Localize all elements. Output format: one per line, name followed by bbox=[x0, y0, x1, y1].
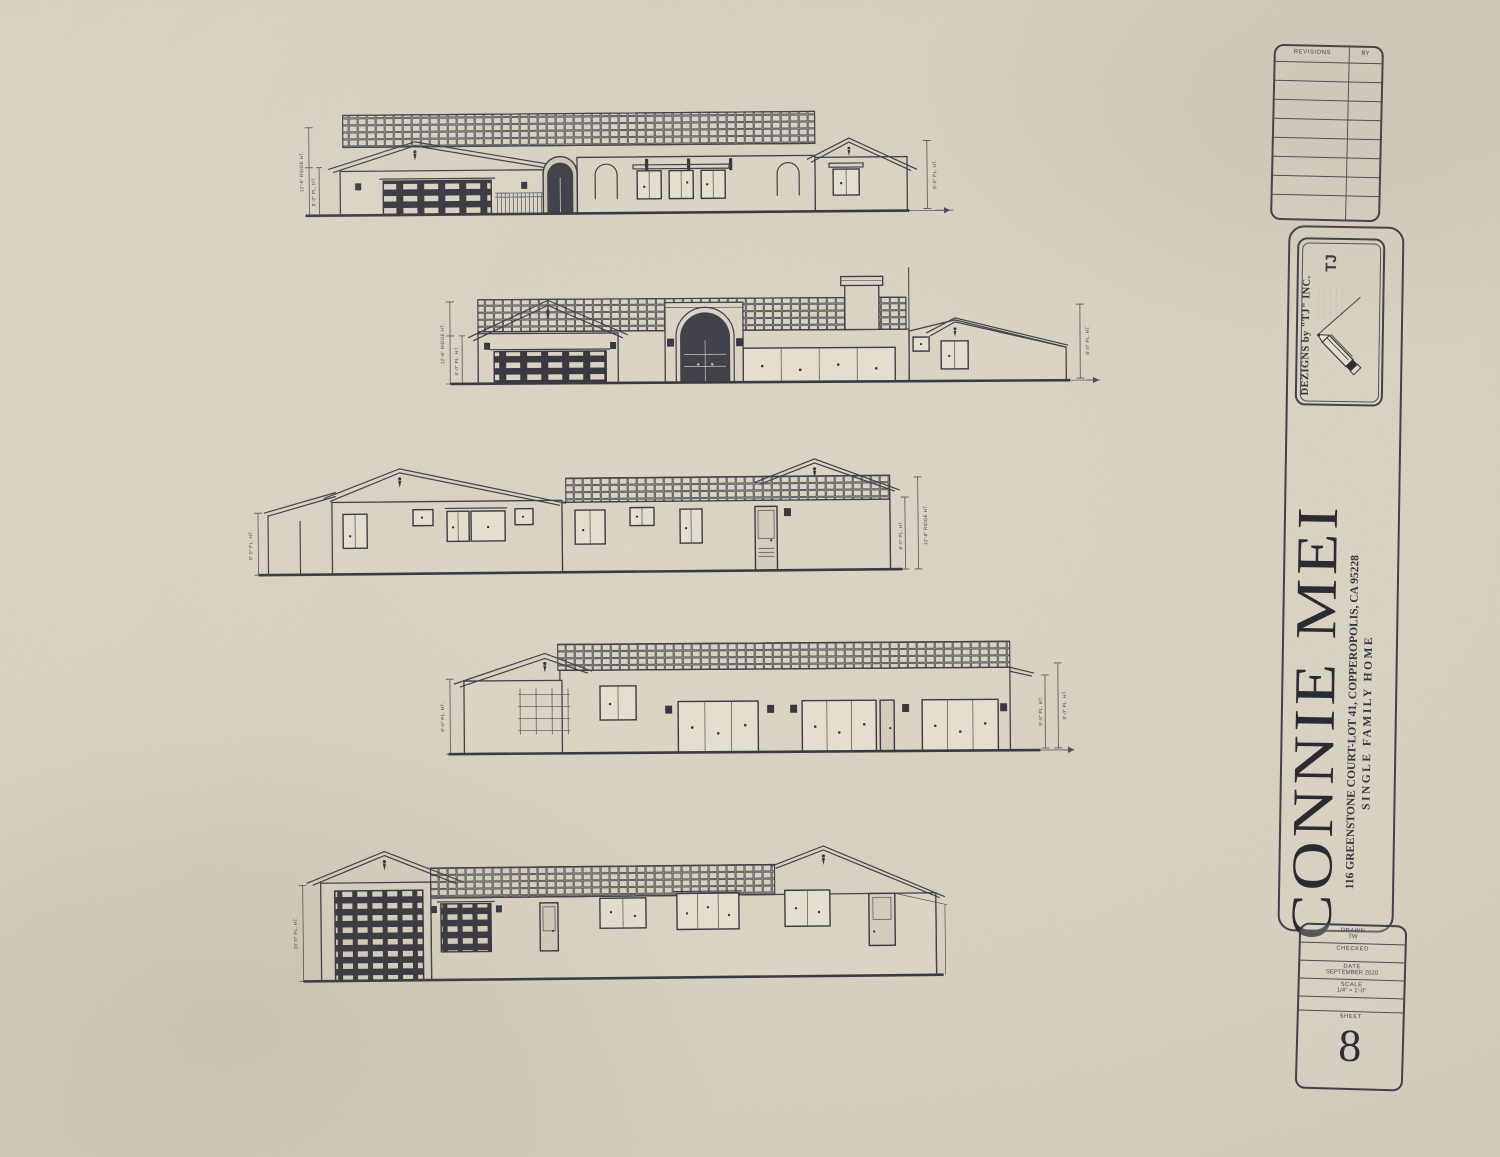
svg-text:8'-0" PL. HT.: 8'-0" PL. HT. bbox=[1085, 325, 1091, 354]
titleblock-strip: DEZIGNS by "TJ" INC. TJ ·············· ·… bbox=[1277, 225, 1404, 933]
elevation-5-drawing: 10'-0" PL. HT. bbox=[294, 834, 966, 996]
project-owner-name: CONNIE MEI bbox=[1282, 503, 1347, 940]
scale-value: 1/4" = 1'-0" bbox=[1299, 987, 1403, 997]
svg-text:12'-6" RIDGE HT.: 12'-6" RIDGE HT. bbox=[923, 505, 929, 546]
designer-logo: DEZIGNS by "TJ" INC. TJ ·············· ·… bbox=[1295, 237, 1386, 406]
svg-text:8'-0" PL. HT.: 8'-0" PL. HT. bbox=[898, 520, 904, 549]
date-value: SEPTEMBER 2020 bbox=[1300, 969, 1404, 979]
elevation-1-drawing: 12'-6" RIDGE HT. 8'-0" PL. HT. 9'-0" PL.… bbox=[294, 92, 960, 233]
checked-value bbox=[1300, 951, 1404, 961]
project-type: SINGLE FAMILY HOME bbox=[1360, 635, 1375, 810]
elevation-2-drawing: 12'-6" RIDGE HT. 9'-0" PL. HT. 8'-0" PL.… bbox=[440, 260, 1101, 399]
svg-text:8'-0" PL. HT.: 8'-0" PL. HT. bbox=[248, 531, 254, 560]
sheet-info-table: DRAWN TW CHECKED DATE SEPTEMBER 2020 SCA… bbox=[1295, 923, 1408, 1092]
elevation-3-drawing: 8'-0" PL. HT. 8'-0" PL. HT. 12'-6" RIDGE… bbox=[249, 447, 940, 584]
pencil-icon bbox=[1297, 239, 1384, 404]
revisions-header-item: REVISIONS bbox=[1276, 49, 1349, 57]
svg-text:8'-0" PL. HT.: 8'-0" PL. HT. bbox=[440, 703, 446, 732]
svg-text:10'-0" PL. HT.: 10'-0" PL. HT. bbox=[293, 917, 299, 949]
drawn-value: TW bbox=[1301, 933, 1405, 943]
revisions-column-divider bbox=[1345, 47, 1350, 219]
svg-text:8'-0" PL. HT.: 8'-0" PL. HT. bbox=[1062, 690, 1068, 719]
svg-text:9'-0" PL. HT.: 9'-0" PL. HT. bbox=[932, 160, 938, 189]
svg-text:9'-0" PL. HT.: 9'-0" PL. HT. bbox=[1038, 696, 1044, 725]
elevation-4-drawing: 8'-0" PL. HT. 9'-0" PL. HT. 8'-0" PL. HT… bbox=[439, 613, 1075, 767]
revisions-table: REVISIONS BY bbox=[1270, 44, 1384, 222]
svg-text:12'-6" RIDGE HT.: 12'-6" RIDGE HT. bbox=[299, 152, 305, 193]
revisions-header-by: BY bbox=[1349, 50, 1382, 57]
svg-text:8'-0" PL. HT.: 8'-0" PL. HT. bbox=[311, 177, 317, 206]
sheet-number: 8 bbox=[1297, 1019, 1402, 1074]
svg-text:9'-0" PL. HT.: 9'-0" PL. HT. bbox=[454, 346, 460, 375]
svg-text:12'-6" RIDGE HT.: 12'-6" RIDGE HT. bbox=[440, 324, 446, 365]
drawing-sheet: 12'-6" RIDGE HT. 8'-0" PL. HT. 9'-0" PL.… bbox=[0, 0, 1500, 1157]
